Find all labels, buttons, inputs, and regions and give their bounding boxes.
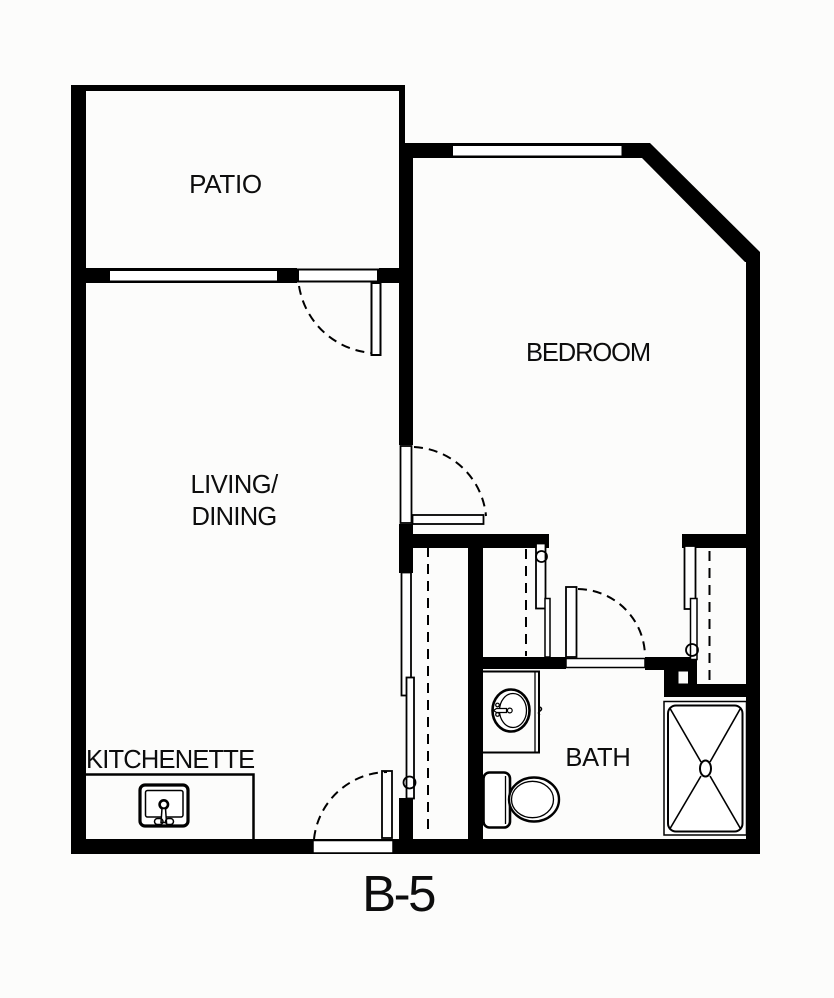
svg-text:BATH: BATH	[565, 744, 630, 772]
svg-text:KITCHENETTE: KITCHENETTE	[86, 746, 254, 774]
svg-text:BEDROOM: BEDROOM	[526, 339, 650, 367]
svg-text:DINING: DINING	[192, 503, 277, 531]
svg-text:B-5: B-5	[362, 865, 435, 922]
svg-text:PATIO: PATIO	[189, 169, 262, 199]
svg-text:LIVING/: LIVING/	[191, 471, 280, 499]
